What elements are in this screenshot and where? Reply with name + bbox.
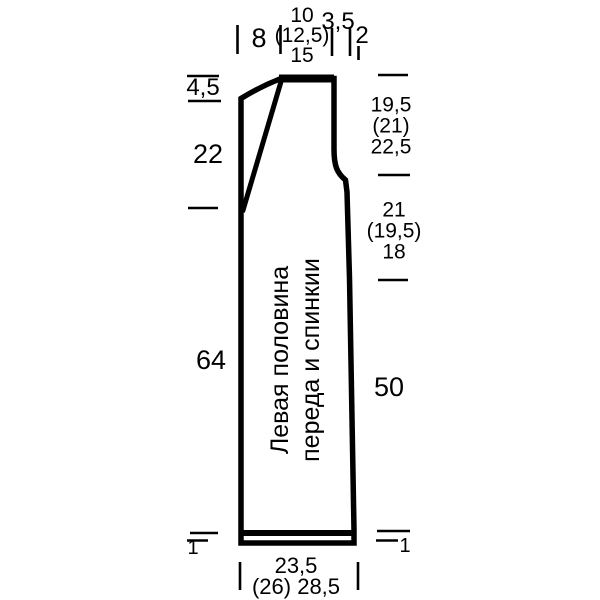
piece-label: Левая половина переда и спинкии	[265, 252, 327, 468]
pattern-diagram: 8 10 (12,5) 15 3,5 2 4,5 22 64 1 19,5 (2…	[0, 0, 600, 600]
measure-left-body-length: 64	[196, 347, 226, 375]
measure-bottom-width-line2: (26) 28,5	[252, 576, 340, 597]
measure-right-side-length: 50	[374, 374, 404, 402]
measure-left-hem-height: 1	[187, 538, 198, 558]
measure-right-upper-size2: (21)	[371, 116, 412, 137]
measure-right-hem-height: 1	[399, 536, 410, 556]
measure-right-armhole-size2: (19,5)	[367, 221, 422, 242]
measure-right-upper-size3: 22,5	[371, 137, 412, 158]
measure-top-armhole-inset: 3,5	[321, 10, 354, 34]
measure-top-side-step: 2	[355, 24, 368, 48]
measure-bottom-width-line1: 23,5	[252, 555, 340, 576]
piece-label-line1: Левая половина	[265, 252, 296, 468]
measure-bottom-width: 23,5 (26) 28,5	[252, 555, 340, 597]
measure-right-upper-size1: 19,5	[371, 95, 412, 116]
measure-right-upper-stack: 19,5 (21) 22,5	[371, 95, 412, 158]
piece-label-line2: переда и спинкии	[296, 252, 327, 468]
measure-right-armhole-size3: 18	[367, 242, 422, 263]
measure-left-neck-slant-depth: 22	[193, 141, 223, 169]
measure-right-armhole-size1: 21	[367, 200, 422, 221]
measure-right-armhole-stack: 21 (19,5) 18	[367, 200, 422, 263]
measure-top-shoulder-width: 8	[251, 25, 266, 53]
measure-left-neck-drop: 4,5	[186, 76, 219, 100]
measure-top-neck-size3: 15	[275, 46, 330, 66]
